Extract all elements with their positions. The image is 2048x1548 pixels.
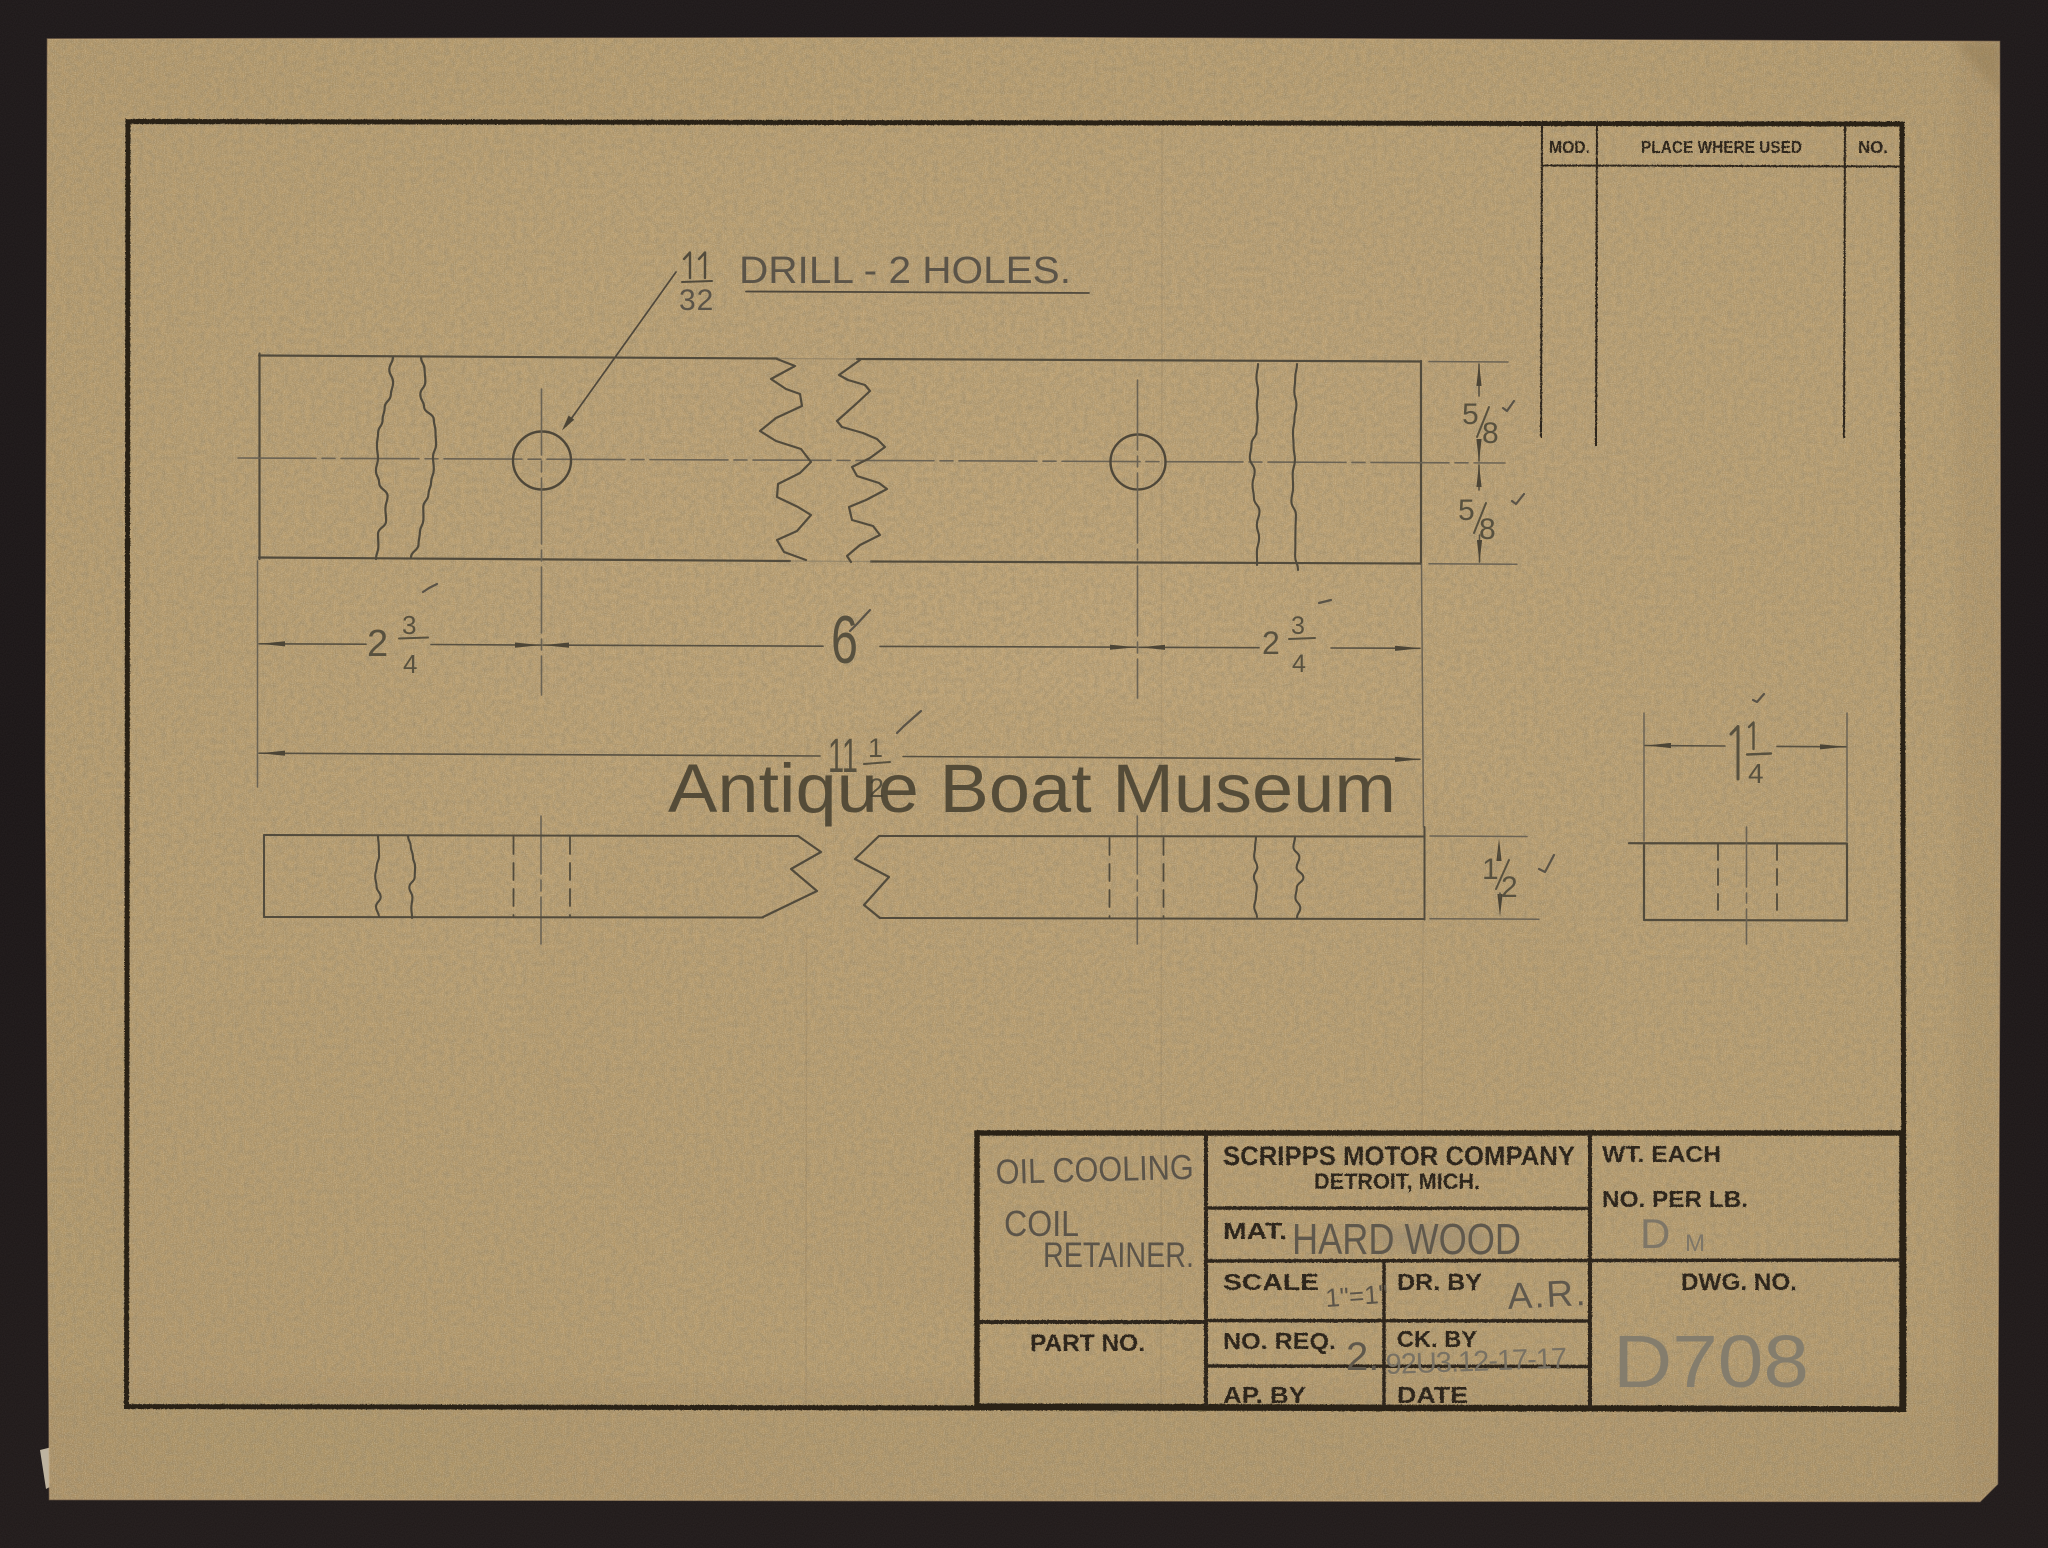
svg-text:DWG. NO.: DWG. NO.: [1681, 1269, 1797, 1296]
svg-text:Antique Boat Museum: Antique Boat Museum: [668, 750, 1396, 827]
svg-text:RETAINER.: RETAINER.: [1043, 1236, 1194, 1275]
svg-text:SCALE: SCALE: [1223, 1269, 1319, 1295]
svg-text:92U3.12-17-17: 92U3.12-17-17: [1385, 1343, 1566, 1381]
svg-text:NO. REQ.: NO. REQ.: [1223, 1328, 1336, 1354]
svg-text:1"=1": 1"=1": [1324, 1279, 1389, 1313]
svg-text:2: 2: [1262, 625, 1280, 661]
svg-text:MAT.: MAT.: [1223, 1218, 1287, 1244]
svg-text:SCRIPPS MOTOR COMPANY: SCRIPPS MOTOR COMPANY: [1223, 1141, 1575, 1171]
svg-text:D708: D708: [1613, 1320, 1809, 1403]
svg-text:D: D: [1640, 1210, 1670, 1257]
svg-text:DR. BY: DR. BY: [1397, 1269, 1482, 1295]
svg-text:2: 2: [367, 623, 388, 665]
svg-text:MOD.: MOD.: [1549, 137, 1590, 157]
svg-text:2: 2: [1501, 871, 1518, 904]
svg-text:32: 32: [679, 284, 714, 317]
svg-text:1: 1: [1482, 853, 1499, 886]
svg-text:OIL COOLING: OIL COOLING: [995, 1148, 1194, 1192]
svg-text:PART NO.: PART NO.: [1030, 1330, 1145, 1357]
svg-text:3: 3: [402, 610, 416, 640]
svg-text:8: 8: [1482, 417, 1499, 450]
svg-text:DRILL - 2 HOLES.: DRILL - 2 HOLES.: [739, 250, 1071, 292]
svg-text:3: 3: [1291, 612, 1305, 640]
svg-text:PLACE WHERE USED: PLACE WHERE USED: [1641, 137, 1802, 157]
svg-text:6: 6: [831, 602, 858, 678]
svg-text:A.R.: A.R.: [1506, 1272, 1588, 1317]
svg-text:AP. BY: AP. BY: [1223, 1382, 1306, 1408]
svg-text:4: 4: [403, 649, 417, 679]
svg-text:M: M: [1685, 1230, 1705, 1257]
svg-text:8: 8: [1479, 513, 1496, 546]
svg-text:NO.: NO.: [1858, 137, 1888, 157]
svg-text:HARD WOOD: HARD WOOD: [1292, 1215, 1521, 1264]
svg-text:2.: 2.: [1346, 1335, 1379, 1379]
svg-text:5: 5: [1458, 494, 1475, 527]
svg-text:5: 5: [1462, 398, 1479, 431]
svg-text:DETROIT, MICH.: DETROIT, MICH.: [1314, 1169, 1480, 1194]
svg-text:DATE: DATE: [1397, 1382, 1468, 1408]
svg-text:4: 4: [1292, 650, 1306, 678]
svg-text:4: 4: [1748, 758, 1764, 789]
svg-text:WT. EACH: WT. EACH: [1602, 1141, 1721, 1167]
svg-text:NO. PER LB.: NO. PER LB.: [1602, 1186, 1748, 1212]
